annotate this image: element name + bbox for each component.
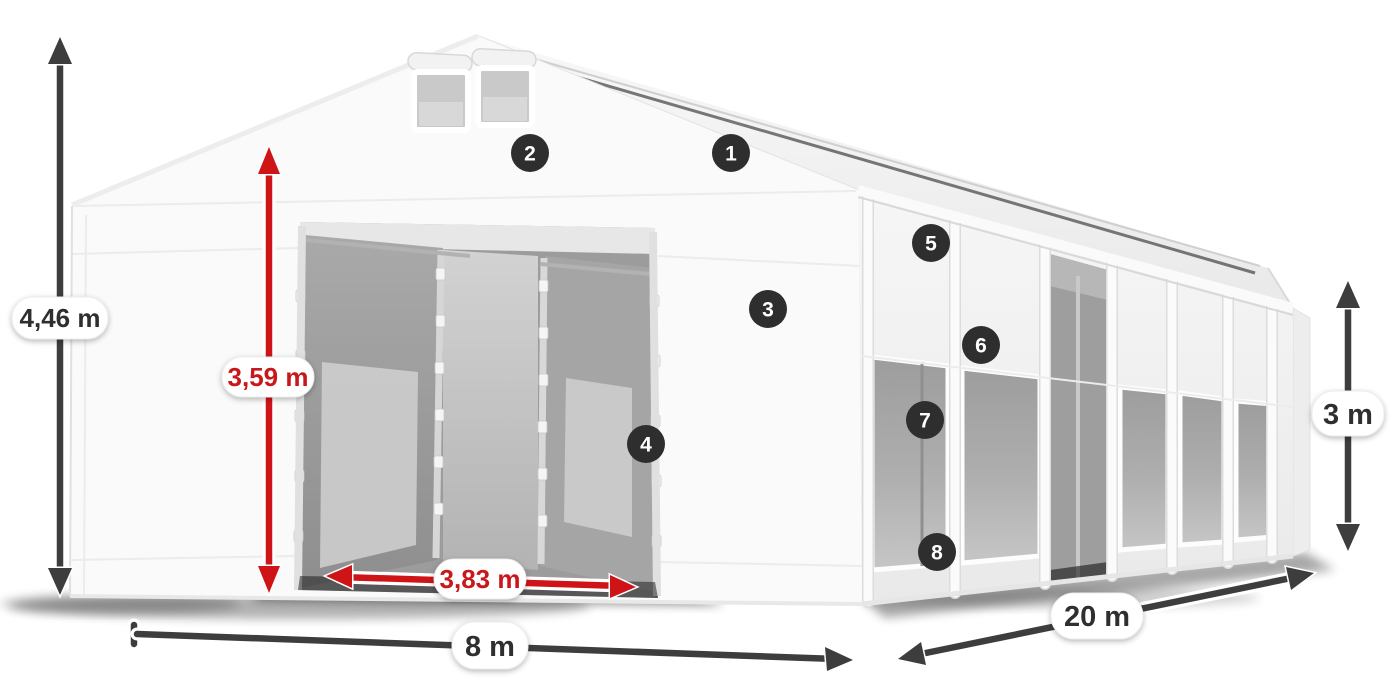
side-height-value: 3 m xyxy=(1323,399,1373,431)
callout-badge-1: 1 xyxy=(712,134,750,172)
door-height-value: 3,59 m xyxy=(228,362,309,392)
callout-badge-4-label: 4 xyxy=(640,434,652,457)
arrowhead-down xyxy=(1336,524,1360,551)
callout-badge-5-label: 5 xyxy=(925,233,937,256)
doorway-jamb-left xyxy=(298,226,302,590)
side-open-section xyxy=(1050,254,1108,583)
vent-glass-reflection xyxy=(419,102,463,126)
callout-badge-7-label: 7 xyxy=(919,410,931,433)
callout-badge-6: 6 xyxy=(962,326,1000,364)
arrowhead-up xyxy=(48,37,72,64)
side-window-2 xyxy=(962,368,1040,563)
side-window-3 xyxy=(1120,387,1168,550)
total-height-label: 4,46 m xyxy=(12,297,108,339)
tent-illustration xyxy=(70,36,1310,604)
vent-glass-reflection xyxy=(483,97,527,121)
doorway-jamb-right xyxy=(653,232,657,596)
callout-badge-7: 7 xyxy=(906,401,944,439)
door-width-value: 3,83 m xyxy=(440,564,521,594)
door-wing-right-window xyxy=(564,378,632,537)
side-height-label: 3 m xyxy=(1312,391,1384,436)
callout-badge-4: 4 xyxy=(627,425,665,463)
arrowhead-down xyxy=(48,568,72,595)
door-width-label: 3,83 m xyxy=(434,559,526,599)
far-end-wall xyxy=(1293,308,1310,556)
callout-badge-2-label: 2 xyxy=(524,143,536,166)
door-height-label: 3,59 m xyxy=(222,357,314,397)
gable-vent-right xyxy=(472,48,537,125)
door-wing-left-window xyxy=(320,362,418,568)
diagram-canvas: 1 2 3 4 5 6 7 8 xyxy=(0,0,1400,700)
total-height-value: 4,46 m xyxy=(20,303,101,333)
callout-badge-6-label: 6 xyxy=(975,335,987,358)
callout-badge-3: 3 xyxy=(749,290,787,328)
gable-vent-left xyxy=(408,52,473,130)
callout-badge-3-label: 3 xyxy=(762,299,774,322)
length-value: 20 m xyxy=(1064,601,1130,633)
front-doorway xyxy=(294,222,661,598)
length-label: 20 m xyxy=(1051,593,1143,639)
arrowhead-up xyxy=(1336,281,1360,308)
arrowhead-left xyxy=(898,642,926,665)
front-width-value: 8 m xyxy=(465,631,515,663)
side-window-4 xyxy=(1180,393,1224,545)
front-width-label: 8 m xyxy=(452,622,528,669)
callout-badge-8-label: 8 xyxy=(931,542,943,565)
arrowhead-right xyxy=(825,647,853,671)
callout-badge-1-label: 1 xyxy=(725,143,737,166)
doorway-middle-gap xyxy=(443,250,538,570)
callout-badge-5: 5 xyxy=(912,224,950,262)
tent-dimension-diagram: 1 2 3 4 5 6 7 8 xyxy=(0,0,1400,700)
callout-badge-2: 2 xyxy=(511,134,549,172)
callout-badge-8: 8 xyxy=(918,533,956,571)
